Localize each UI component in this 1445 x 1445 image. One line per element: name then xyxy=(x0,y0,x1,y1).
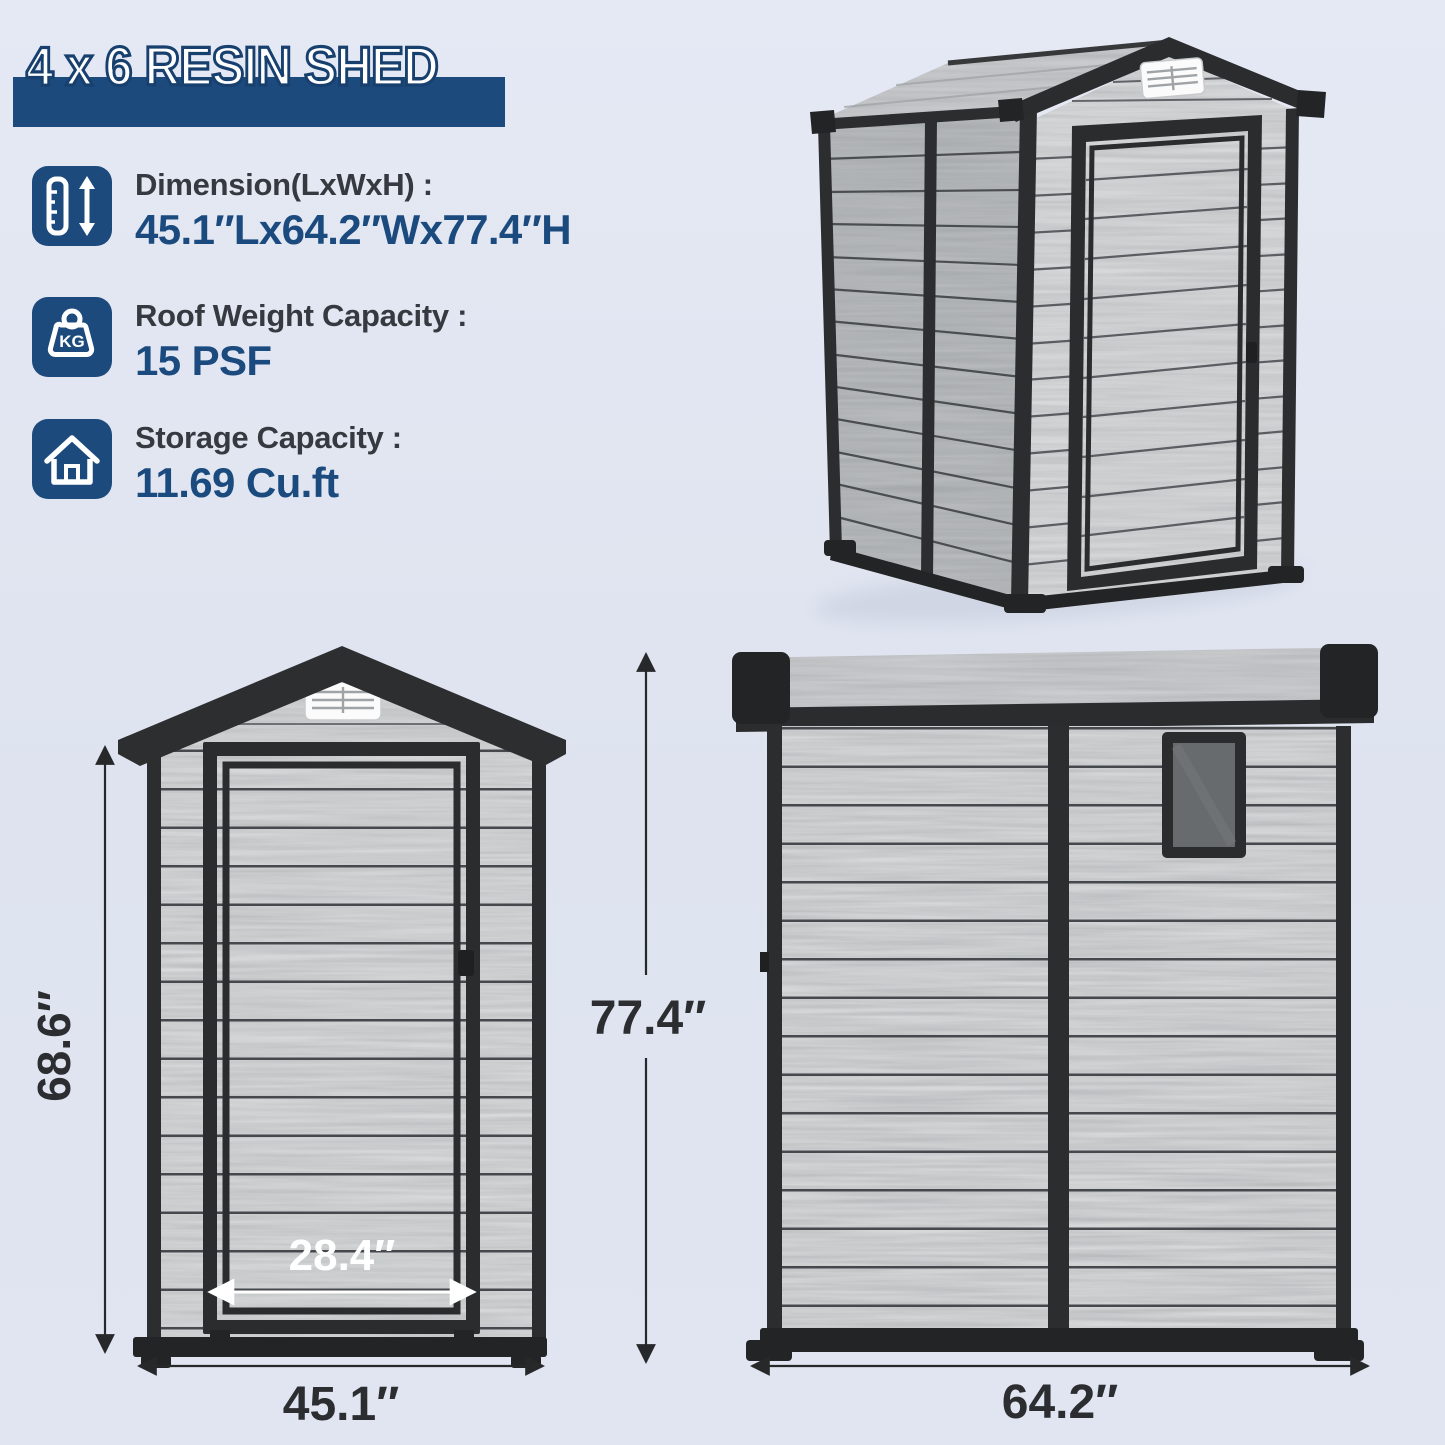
front-base-tab-right xyxy=(454,1330,474,1339)
front-base xyxy=(133,1337,547,1357)
kg-icon-text: KG xyxy=(59,332,85,351)
front-base-tab-left xyxy=(210,1330,230,1339)
shed-3d-view xyxy=(810,30,1326,635)
shed-3d-foot-near xyxy=(1004,594,1046,613)
side-foot-left xyxy=(746,1340,792,1361)
spec-row-storage: Storage Capacity : 11.69 Cu.ft xyxy=(32,419,402,505)
shed-3d-eave-cap-back xyxy=(810,110,836,134)
shed-3d-eave-cap-right xyxy=(1296,90,1326,118)
front-door-width-label: 28.4″ xyxy=(289,1231,396,1280)
spec-text-roof-weight: Roof Weight Capacity : 15 PSF xyxy=(135,297,467,383)
front-height-label: 68.6″ xyxy=(28,990,80,1102)
side-corner-post-right xyxy=(1336,726,1351,1346)
spec-row-roof-weight: KG Roof Weight Capacity : 15 PSF xyxy=(32,297,467,383)
infographic-page: 68.6″ 28.4″ 45.1″ 77.4″ 64.2″ xyxy=(0,0,1445,1445)
spec-label: Storage Capacity : xyxy=(135,421,402,456)
front-width-dimension: 45.1″ xyxy=(139,1366,543,1431)
spec-value: 11.69 Cu.ft xyxy=(135,461,402,505)
spec-text-storage: Storage Capacity : 11.69 Cu.ft xyxy=(135,419,402,505)
spec-text-dimension: Dimension(LxWxH) : 45.1″Lx64.2″Wx77.4″H xyxy=(135,166,571,252)
overall-height-dimension: 77.4″ xyxy=(590,654,706,1362)
side-mid-post xyxy=(1048,726,1069,1346)
spec-label: Roof Weight Capacity : xyxy=(135,299,467,334)
spec-value: 15 PSF xyxy=(135,339,467,383)
side-foot-right xyxy=(1314,1340,1364,1361)
page-title: 4 x 6 RESIN SHED xyxy=(26,34,438,98)
side-window xyxy=(1162,732,1246,858)
front-door-handle xyxy=(458,950,474,976)
spec-row-dimension: Dimension(LxWxH) : 45.1″Lx64.2″Wx77.4″H xyxy=(32,166,571,252)
shed-3d-door-handle xyxy=(1246,342,1257,363)
shed-3d-foot-right xyxy=(1268,566,1304,583)
height-dimension-icon xyxy=(32,166,112,246)
shed-3d-gable-vent xyxy=(1140,58,1205,99)
side-roof-cap-left xyxy=(732,652,790,724)
side-width-label: 64.2″ xyxy=(1002,1376,1118,1429)
front-corner-post-left xyxy=(147,740,161,1342)
front-corner-post-right xyxy=(532,740,546,1342)
spec-label: Dimension(LxWxH) : xyxy=(135,168,571,203)
house-storage-icon xyxy=(32,419,112,499)
overall-height-label: 77.4″ xyxy=(590,992,706,1045)
side-roof-cap-right xyxy=(1320,644,1378,718)
side-hinge-tick xyxy=(760,952,769,972)
shed-side-view xyxy=(730,640,1380,1361)
side-base xyxy=(760,1328,1358,1352)
side-corner-post-left xyxy=(767,726,782,1346)
shed-3d-eave-cap-left xyxy=(998,98,1024,122)
front-width-label: 45.1″ xyxy=(283,1378,399,1431)
front-height-dimension: 68.6″ xyxy=(28,747,105,1352)
weight-kg-icon: KG xyxy=(32,297,112,377)
spec-value: 45.1″Lx64.2″Wx77.4″H xyxy=(135,208,571,252)
shed-3d-foot-back xyxy=(824,540,856,556)
side-width-dimension: 64.2″ xyxy=(752,1366,1368,1429)
